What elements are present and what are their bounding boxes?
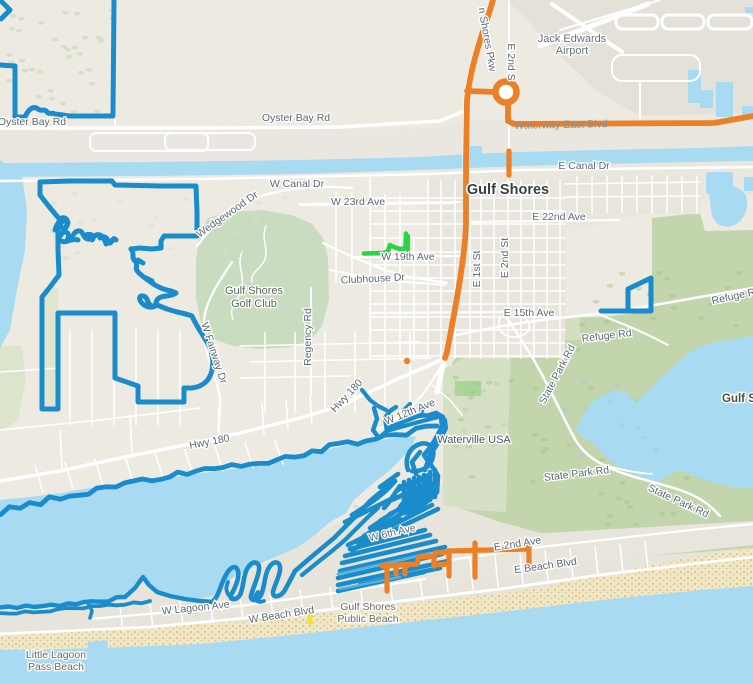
svg-text:Little Lagoon: Little Lagoon: [26, 649, 86, 661]
svg-text:Golf Club: Golf Club: [231, 298, 277, 310]
svg-text:Regency Rd: Regency Rd: [302, 308, 314, 366]
svg-text:Waterville USA: Waterville USA: [437, 434, 511, 446]
svg-text:E 22nd Ave: E 22nd Ave: [532, 211, 586, 223]
svg-text:E Canal Dr: E Canal Dr: [558, 160, 610, 172]
svg-text:W 23rd Ave: W 23rd Ave: [331, 196, 385, 208]
svg-text:Oyster Bay Rd: Oyster Bay Rd: [262, 112, 330, 124]
svg-text:Public Beach: Public Beach: [337, 613, 398, 625]
svg-text:Gulf Shores: Gulf Shores: [225, 285, 284, 297]
svg-text:Gulf Stat: Gulf Stat: [722, 393, 753, 405]
svg-text:Pass Beach: Pass Beach: [28, 661, 84, 673]
svg-text:Oyster Bay Rd: Oyster Bay Rd: [0, 116, 66, 128]
svg-text:E 1st St: E 1st St: [471, 251, 483, 288]
svg-text:Gulf Shores: Gulf Shores: [467, 182, 549, 198]
svg-text:Airport: Airport: [556, 45, 588, 57]
svg-text:E 15th Ave: E 15th Ave: [504, 307, 555, 319]
svg-text:Gulf Shores: Gulf Shores: [340, 601, 395, 613]
svg-text:E 2nd St: E 2nd St: [499, 238, 511, 278]
svg-text:E 2nd S: E 2nd S: [505, 43, 517, 80]
svg-text:Jack Edwards: Jack Edwards: [538, 33, 607, 45]
svg-text:W 19th Ave: W 19th Ave: [381, 251, 435, 263]
svg-text:Waterway East Blvd: Waterway East Blvd: [514, 118, 608, 132]
svg-text:W Canal Dr: W Canal Dr: [270, 178, 325, 190]
